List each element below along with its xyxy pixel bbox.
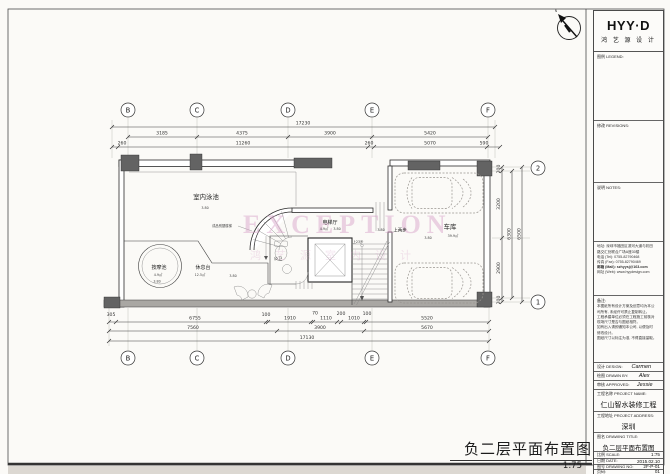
bottom-dimensions: 305 6755 100 1910 70 1110 200 1010 100 5… bbox=[107, 311, 491, 344]
project-name-block: 工程名称 PROJECT NAME: 仁山智水装修工程 bbox=[594, 390, 663, 412]
car-top bbox=[395, 173, 483, 213]
design-row: 设计 DESIGN: Carmen bbox=[594, 363, 663, 372]
svg-text:C: C bbox=[195, 107, 200, 115]
svg-text:2: 2 bbox=[536, 165, 540, 173]
north-arrow-icon: N bbox=[555, 9, 581, 40]
designer-name: Carmen bbox=[623, 364, 660, 370]
svg-text:2900: 2900 bbox=[496, 262, 502, 274]
up-two-label: 上两步 bbox=[393, 227, 407, 234]
svg-text:200: 200 bbox=[496, 165, 502, 174]
svg-text:3.80: 3.80 bbox=[229, 274, 236, 278]
svg-text:5670: 5670 bbox=[421, 325, 433, 331]
page-value: 01 bbox=[655, 469, 660, 474]
room-garage-label: 车库 bbox=[444, 222, 457, 231]
footer-scale: 1:75 bbox=[450, 461, 592, 471]
svg-text:200: 200 bbox=[496, 296, 502, 305]
svg-text:305: 305 bbox=[107, 312, 116, 318]
brand-logo: HYY·D bbox=[594, 18, 663, 33]
legend-section: 图例 LEGEND: bbox=[594, 52, 663, 121]
svg-text:260: 260 bbox=[365, 141, 374, 147]
svg-text:3900: 3900 bbox=[314, 325, 326, 331]
svg-text:6755: 6755 bbox=[189, 316, 201, 322]
svg-text:3.80: 3.80 bbox=[424, 236, 431, 240]
svg-text:3.80: 3.80 bbox=[377, 228, 384, 232]
project-address: 深圳 bbox=[597, 422, 660, 432]
drawing-title-block: 图名 DRAWING TITLE: 负二层平面布置图 bbox=[594, 433, 663, 452]
svg-text:D: D bbox=[285, 107, 290, 115]
logo: HYY·D 鸿 艺 源 设 计 bbox=[594, 11, 663, 52]
svg-text:3900: 3900 bbox=[324, 131, 336, 137]
svg-text:1010: 1010 bbox=[348, 316, 360, 322]
main-stair bbox=[352, 238, 390, 305]
right-dimensions: 200 3200 2900 200 6300 6500 bbox=[496, 165, 524, 305]
up-23-label: 上23步 bbox=[353, 239, 364, 244]
footer-drawing-title: 负二层平面布置图 bbox=[450, 438, 592, 461]
car-bottom bbox=[395, 263, 483, 303]
svg-text:200: 200 bbox=[337, 311, 346, 317]
svg-text:4.9㎡: 4.9㎡ bbox=[154, 272, 163, 277]
stair-note-label: 成品别墅楼梯 bbox=[212, 223, 232, 228]
svg-text:4.9㎡: 4.9㎡ bbox=[320, 226, 329, 231]
svg-text:3.80: 3.80 bbox=[153, 280, 160, 284]
svg-text:3.80: 3.80 bbox=[201, 206, 208, 210]
footer-title: 负二层平面布置图 1:75 bbox=[450, 438, 592, 471]
svg-text:E: E bbox=[370, 107, 374, 115]
svg-text:1: 1 bbox=[536, 299, 540, 307]
remark-section: 备注: 本图纸所有设计方案及创意均为本公 司所有, 未经许可禁止复制转让。 工程… bbox=[594, 296, 663, 363]
svg-text:590: 590 bbox=[480, 141, 489, 147]
svg-text:E: E bbox=[370, 355, 374, 363]
svg-text:6500: 6500 bbox=[517, 228, 523, 240]
svg-text:3200: 3200 bbox=[496, 198, 502, 210]
svg-text:5070: 5070 bbox=[424, 141, 436, 147]
svg-text:100: 100 bbox=[363, 311, 372, 317]
svg-text:100: 100 bbox=[262, 312, 271, 318]
drawn-row: 绘图 DRAWN BY: Alex bbox=[594, 372, 663, 381]
approver-name: Jessie bbox=[629, 382, 660, 388]
svg-text:260: 260 bbox=[118, 141, 127, 147]
svg-text:39.9㎡: 39.9㎡ bbox=[448, 233, 459, 238]
room-massage-label: 按摩池 bbox=[151, 264, 166, 271]
room-bath-label: 公卫 bbox=[274, 256, 282, 261]
approved-row: 审核 APPROVED: Jessie bbox=[594, 381, 663, 390]
contact-section: 地址: 深圳市福田区滨河大道与彩田 路交汇处联合广场A座30楼 电话 (Tel)… bbox=[594, 242, 663, 296]
project-address-block: 工程地址 PROJECT ADDRESS: 深圳 bbox=[594, 412, 663, 433]
date-value: 2015.02.10 bbox=[637, 459, 660, 464]
svg-text:F: F bbox=[486, 107, 490, 115]
revisions-section: 修改 REVISIONS: bbox=[594, 121, 663, 183]
north-label: N bbox=[555, 9, 558, 13]
furniture-chairs bbox=[234, 284, 272, 300]
drawing-title: 负二层平面布置图 bbox=[597, 442, 660, 452]
floor-plan-canvas: N 17230 3185 4375 3900 5420 260 11260 26… bbox=[0, 0, 670, 474]
svg-text:4375: 4375 bbox=[236, 131, 248, 137]
svg-text:7560: 7560 bbox=[187, 325, 199, 331]
room-elevhall-label: 电梯厅 bbox=[322, 219, 337, 226]
title-block: HYY·D 鸿 艺 源 设 计 图例 LEGEND: 修改 REVISIONS:… bbox=[593, 10, 664, 474]
svg-text:11260: 11260 bbox=[236, 141, 251, 147]
svg-text:5520: 5520 bbox=[421, 316, 433, 322]
svg-text:C: C bbox=[195, 355, 200, 363]
svg-text:D: D bbox=[285, 355, 290, 363]
watermark-text: EXCEPTION bbox=[243, 210, 452, 239]
svg-text:B: B bbox=[126, 107, 131, 115]
svg-text:17230: 17230 bbox=[296, 121, 311, 127]
project-name: 仁山智水装修工程 bbox=[597, 400, 660, 410]
svg-text:5420: 5420 bbox=[424, 131, 436, 137]
svg-text:17130: 17130 bbox=[300, 335, 315, 341]
svg-text:70: 70 bbox=[312, 311, 318, 317]
notes-section: 说明 NOTES: bbox=[594, 183, 663, 242]
drafter-name: Alex bbox=[628, 373, 660, 379]
svg-text:1110: 1110 bbox=[320, 316, 332, 322]
svg-text:1910: 1910 bbox=[284, 316, 296, 322]
svg-text:B: B bbox=[126, 355, 131, 363]
page-row: 页码: 01 bbox=[594, 470, 663, 474]
top-dimensions: 17230 3185 4375 3900 5420 260 11260 260 … bbox=[110, 121, 502, 150]
drawing-sheet: N 17230 3185 4375 3900 5420 260 11260 26… bbox=[0, 0, 670, 474]
room-pool-label: 室内泳池 bbox=[193, 192, 219, 201]
svg-text:6300: 6300 bbox=[507, 228, 513, 240]
svg-text:12.5㎡: 12.5㎡ bbox=[195, 272, 206, 277]
scale-value: 1:75 bbox=[651, 452, 660, 457]
svg-text:F: F bbox=[486, 355, 490, 363]
svg-text:3185: 3185 bbox=[156, 131, 168, 137]
svg-text:3.80: 3.80 bbox=[333, 227, 340, 231]
brand-name-cn: 鸿 艺 源 设 计 bbox=[594, 35, 663, 44]
room-rest-label: 休息台 bbox=[195, 264, 210, 271]
